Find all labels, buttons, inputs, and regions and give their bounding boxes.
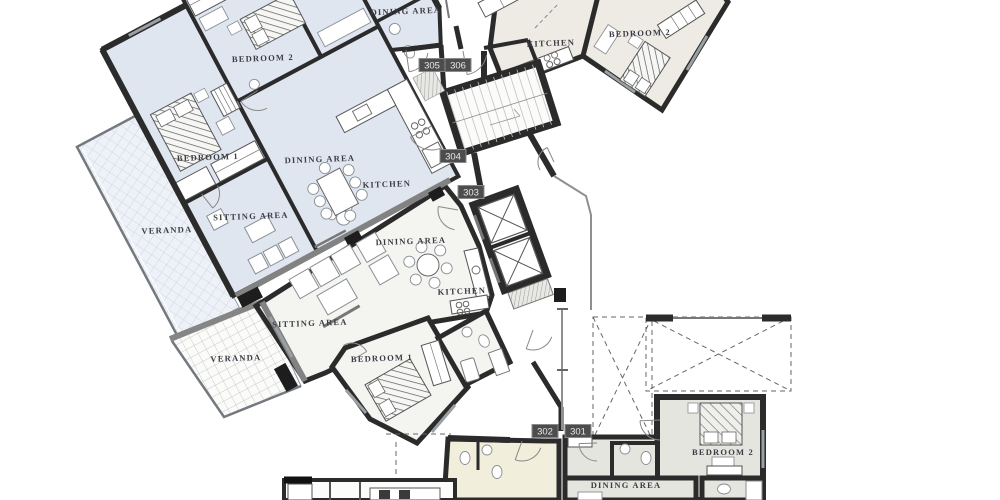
svg-text:BEDROOM 2: BEDROOM 2 (692, 447, 754, 457)
svg-text:301: 301 (570, 427, 586, 438)
svg-text:304: 304 (445, 152, 461, 163)
svg-text:VERANDA: VERANDA (141, 224, 192, 236)
svg-text:KITCHEN: KITCHEN (437, 285, 486, 297)
svg-text:DINING AREA: DINING AREA (591, 480, 662, 490)
svg-text:KITCHEN: KITCHEN (526, 37, 575, 49)
svg-text:VERANDA: VERANDA (210, 352, 261, 364)
svg-text:306: 306 (450, 61, 466, 72)
svg-text:305: 305 (424, 61, 440, 72)
svg-text:303: 303 (463, 188, 479, 199)
svg-text:302: 302 (537, 427, 553, 438)
svg-text:KITCHEN: KITCHEN (362, 178, 411, 190)
